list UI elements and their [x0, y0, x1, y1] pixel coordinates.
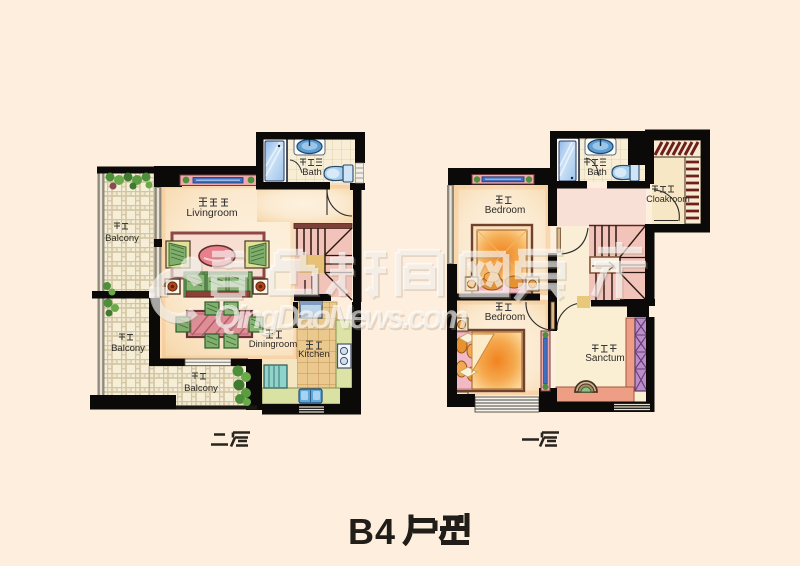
svg-text:Bath: Bath: [302, 167, 322, 178]
svg-text:Sanctum: Sanctum: [585, 353, 624, 364]
svg-text:Bath: Bath: [587, 167, 607, 178]
svg-text:Kitchen: Kitchen: [298, 349, 330, 360]
svg-text:Bedroom: Bedroom: [485, 312, 526, 323]
svg-text:B4: B4: [348, 511, 396, 552]
svg-text:QingDaoNews.com: QingDaoNews.com: [214, 298, 468, 335]
svg-text:Balcony: Balcony: [105, 233, 139, 244]
svg-text:Bedroom: Bedroom: [485, 205, 526, 216]
svg-text:Balcony: Balcony: [111, 343, 145, 354]
svg-text:Balcony: Balcony: [184, 383, 218, 394]
svg-text:Livingroom: Livingroom: [186, 207, 238, 219]
svg-text:Diningroom: Diningroom: [249, 339, 298, 350]
svg-text:Cloakroom: Cloakroom: [646, 194, 690, 204]
